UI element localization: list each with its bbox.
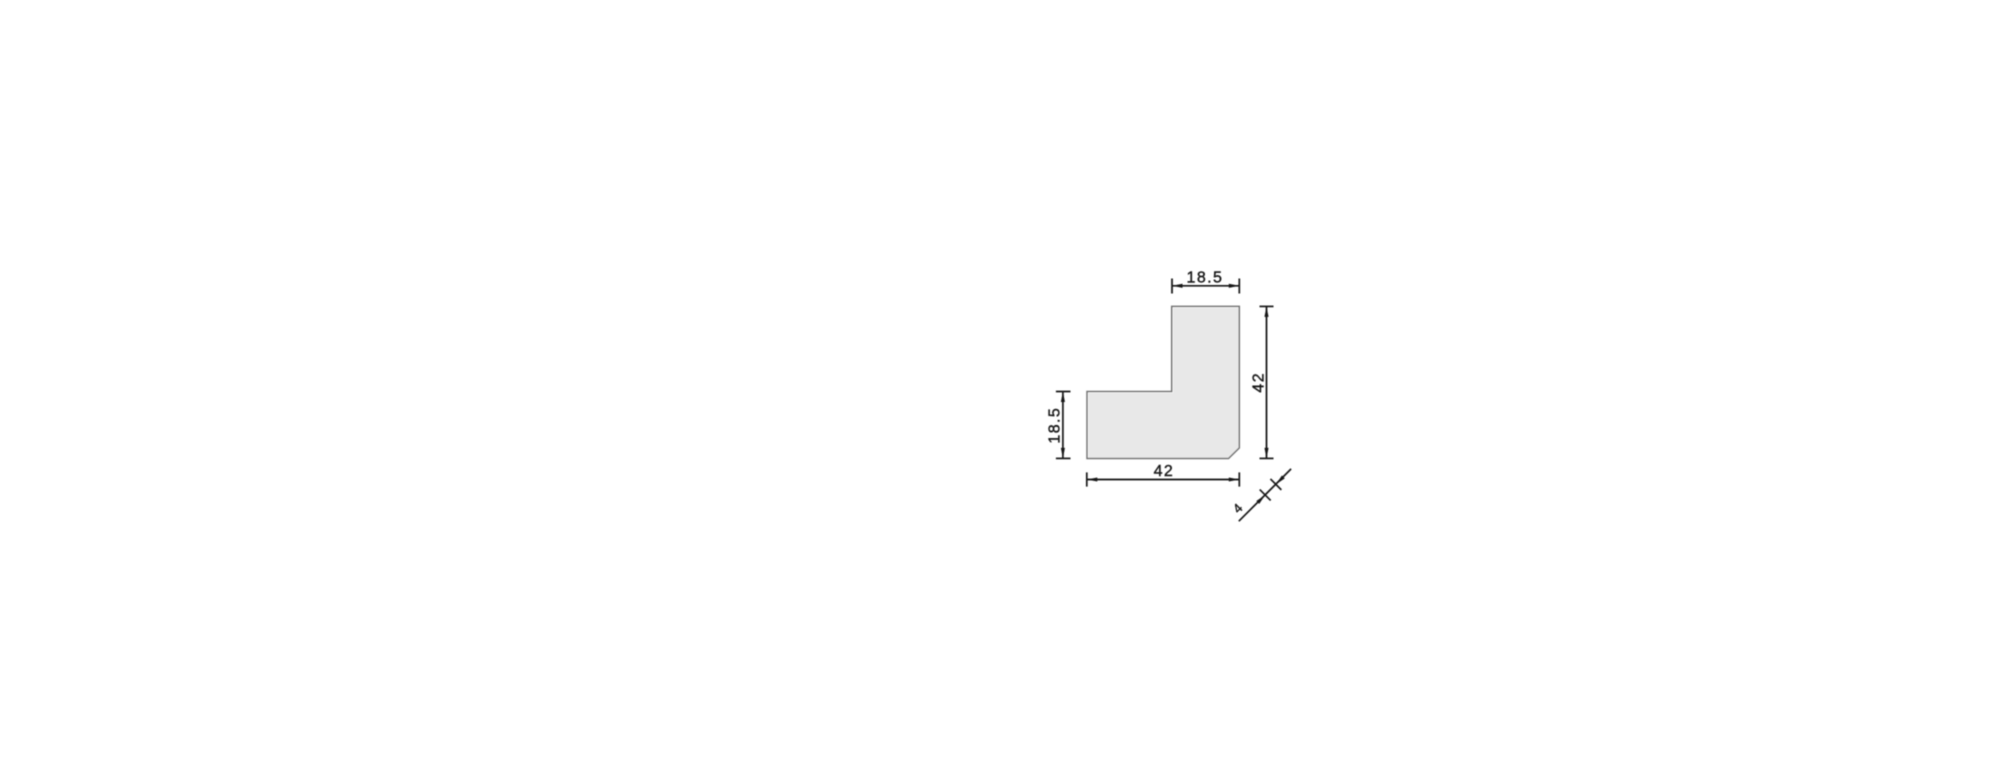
svg-text:42: 42 [1250,372,1267,393]
svg-text:42: 42 [1154,463,1175,480]
svg-text:18.5: 18.5 [1047,407,1064,444]
svg-text:18.5: 18.5 [1187,269,1224,286]
